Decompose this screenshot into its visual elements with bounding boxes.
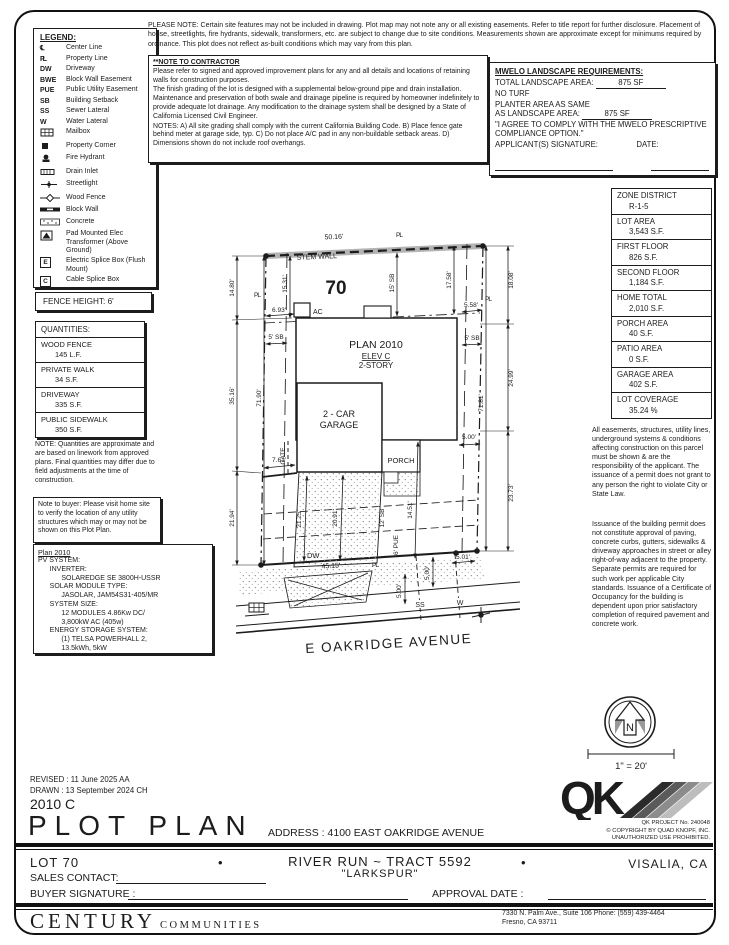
house-footprint: [294, 303, 457, 496]
bullet: •: [218, 855, 223, 870]
easement-note: All easements, structures, utility lines…: [592, 426, 713, 499]
zone-value: 1,184 S.F.: [617, 278, 708, 287]
quantity-value: 335 S.F.: [41, 400, 141, 409]
revised-line: REVISED : 11 June 2025 AA: [30, 775, 130, 784]
mwelo-total-value: 875 SF: [596, 78, 666, 90]
property-corner-icon: [40, 142, 66, 153]
zone-value: 2,010 S.F.: [617, 304, 708, 313]
builder-name: CENTURY: [30, 909, 156, 933]
zone-value: 826 S.F.: [617, 253, 708, 262]
ac-label: AC: [313, 309, 323, 316]
model-name: "LARKSPUR": [240, 868, 520, 880]
porch-step: [384, 472, 398, 483]
ac-pad: [294, 303, 310, 317]
approval-date-line: [548, 888, 706, 900]
mailbox-icon: [40, 128, 66, 140]
zone-value: 0 S.F.: [617, 355, 708, 364]
zone-row: LOT COVERAGE 35.24 %: [612, 393, 711, 418]
quantity-value: 34 S.F.: [41, 375, 141, 384]
pv-line: 3,800kW AC (405w): [38, 619, 208, 628]
applicant-signature-line: [495, 170, 613, 171]
zone-info-table: ZONE DISTRICT R-1-5 LOT AREA 3,543 S.F. …: [611, 188, 712, 419]
centerline-icon: ℄: [40, 44, 66, 53]
street-name: E OAKRIDGE AVENUE: [305, 631, 473, 656]
legend-row: PL Property Line: [40, 55, 152, 64]
quantity-row: PRIVATE WALK 34 S.F.: [36, 362, 144, 387]
stem-wall-label: STEM WALL: [297, 253, 338, 262]
divider: [16, 849, 713, 850]
qk-project-no: QK PROJECT No. 240048: [560, 820, 710, 827]
legend-row: ℄ Center Line: [40, 44, 152, 53]
buyer-signature-label: BUYER SIGNATURE :: [30, 888, 135, 900]
legend-box: LEGEND: ℄ Center Line PL Property Line D…: [33, 28, 157, 288]
buyer-note-box: Note to buyer: Please visit home site to…: [33, 497, 161, 543]
pv-line: ENERGY STORAGE SYSTEM:: [38, 627, 208, 636]
pv-line: SOLAR MODULE TYPE:: [38, 583, 208, 592]
dim-label: 71.81': [478, 394, 485, 412]
quantity-label: PUBLIC SIDEWALK: [41, 415, 141, 424]
legend-row: Drain Inlet: [40, 168, 152, 179]
legend-row: Pad Mounted Elec Transformer (Above Grou…: [40, 230, 152, 256]
zone-value: 402 S.F.: [617, 380, 708, 389]
site-plan: 70 STEM WALL 50.16' PL PL PL PL 14.80' 3…: [224, 226, 524, 686]
dim-label: 21.94': [229, 509, 236, 527]
quantity-row: DRIVEWAY 335 S.F.: [36, 387, 144, 412]
legend-row: SB Building Setback: [40, 97, 152, 106]
legend-row: SS Sewer Lateral: [40, 107, 152, 116]
dim-label: 5.00': [424, 566, 431, 580]
propertyline-icon: PL: [40, 55, 66, 64]
zone-value: 40 S.F.: [617, 329, 708, 338]
mwelo-planter-value: 875 SF: [582, 109, 652, 120]
legend-sym: W: [40, 118, 66, 127]
zone-row: SECOND FLOOR 1,184 S.F.: [612, 266, 711, 292]
site-address: ADDRESS : 4100 EAST OAKRIDGE AVENUE: [268, 827, 484, 839]
builder-logo: CENTURY COMMUNITIES: [30, 909, 262, 934]
lot-number: 70: [325, 278, 346, 299]
dim-label: 24.99': [508, 369, 515, 387]
dim-label: 14.80': [229, 279, 236, 297]
quantity-value: 145 L.F.: [41, 350, 141, 359]
compass-rose: N: [602, 694, 658, 750]
city-label: VISALIA, CA: [598, 857, 708, 871]
dim-label: 17.58': [446, 271, 453, 289]
pv-line: 12 MODULES 4.86Kw DC/: [38, 610, 208, 619]
pv-line: PV SYSTEM:: [38, 557, 208, 566]
dim-label: 15' SB: [389, 274, 396, 293]
contractor-paragraph: The finish grading of the lot is designe…: [153, 86, 483, 121]
dw-label: DW: [307, 551, 320, 560]
scale-bar: [585, 748, 677, 760]
mwelo-planter-row: AS LANDSCAPE AREA: 875 SF: [495, 109, 710, 120]
pl-mark: PL: [254, 292, 261, 299]
water-lateral-label: W: [457, 600, 464, 607]
mwelo-no-turf: NO TURF: [495, 89, 710, 100]
sales-contact-label: SALES CONTACT:: [30, 872, 119, 884]
zone-row: HOME TOTAL 2,010 S.F.: [612, 291, 711, 317]
zone-label: HOME TOTAL: [617, 293, 708, 302]
pv-system-box: Plan 2010 PV SYSTEM: INVERTER: SOLAREDGE…: [33, 544, 213, 654]
qk-logo: QK: [558, 772, 718, 820]
streetlight-icon: [40, 180, 66, 192]
north-label: N: [626, 722, 634, 734]
mailbox-icon: [245, 603, 269, 616]
streetlight-icon: [472, 607, 490, 623]
pl-mark: PL: [396, 232, 403, 239]
quantities-box: QUANTITIES: WOOD FENCE 145 L.F. PRIVATE …: [35, 321, 145, 438]
zone-row: FIRST FLOOR 826 S.F.: [612, 240, 711, 266]
zone-row: PORCH AREA 40 S.F.: [612, 317, 711, 343]
mwelo-planter-line1: PLANTER AREA AS SAME: [495, 100, 710, 110]
dim-label: 5.01': [456, 554, 470, 561]
fire-hydrant-icon: [40, 154, 66, 166]
legend-sym: DW: [40, 65, 66, 74]
dim-label: 5' SB: [464, 335, 479, 342]
mwelo-agreement: "I AGREE TO COMPLY WITH THE MWELO PRESCR…: [495, 120, 710, 139]
dim-label: 15.31': [282, 275, 289, 293]
zone-label: LOT AREA: [617, 217, 708, 226]
divider: [16, 903, 713, 907]
block-wall-icon: [40, 206, 66, 216]
lot-label: LOT 70: [30, 855, 79, 870]
cable-splice-box-icon: C: [40, 276, 66, 287]
dim-label: 5.00': [462, 434, 476, 441]
concrete-icon: [40, 218, 66, 229]
dim-label: 5.00': [396, 584, 403, 598]
zone-row: LOT AREA 3,543 S.F.: [612, 215, 711, 241]
pv-line: (1) TELSA POWERHALL 2,: [38, 636, 208, 645]
fence-height-box: FENCE HEIGHT: 6': [35, 292, 152, 311]
pv-line: 13.5kWh, 5kW: [38, 645, 208, 654]
dim-label: 20.91': [332, 509, 339, 527]
dim-label: 5.58': [464, 302, 478, 309]
zone-label: ZONE DISTRICT: [617, 191, 708, 200]
please-note: PLEASE NOTE: Certain site features may n…: [148, 21, 712, 49]
zone-label: PATIO AREA: [617, 344, 708, 353]
quantities-note: NOTE: Quantities are approximate and are…: [35, 440, 157, 485]
qk-letters: QK: [560, 772, 625, 820]
quantity-row: WOOD FENCE 145 L.F.: [36, 337, 144, 362]
dim-label: 21.25': [296, 510, 303, 528]
driveway-apron: [284, 571, 372, 608]
mwelo-title: MWELO LANDSCAPE REQUIREMENTS:: [495, 67, 710, 78]
sheet-title: PLOT PLAN: [28, 810, 254, 842]
legend-sym: PUE: [40, 86, 66, 95]
scale-label: 1" = 20': [585, 761, 677, 772]
zone-value: 35.24 %: [617, 406, 708, 415]
contractor-note-body: Please refer to signed and approved impr…: [153, 68, 483, 149]
office-city: Fresno, CA 93711: [502, 919, 557, 928]
builder-name-2: COMMUNITIES: [160, 920, 262, 931]
legend-row: Streetlight: [40, 180, 152, 192]
legend-row: PUE Public Utility Easement: [40, 86, 152, 95]
quantities-rows: WOOD FENCE 145 L.F. PRIVATE WALK 34 S.F.…: [36, 337, 144, 437]
dim-label: 12' SB: [379, 509, 386, 528]
dim-label: 6' PUE: [393, 534, 400, 555]
garage-label: GARAGE: [320, 420, 359, 430]
legend-row: BWE Block Wall Easement: [40, 76, 152, 85]
legend-row: Block Wall: [40, 206, 152, 216]
dim-label: 6.93': [272, 307, 286, 314]
transformer-icon: [40, 230, 66, 244]
tract-label: RIVER RUN ~ TRACT 5592: [240, 854, 520, 869]
sales-contact-line: [116, 872, 266, 884]
quantity-label: DRIVEWAY: [41, 390, 141, 399]
quantities-title: QUANTITIES:: [36, 322, 144, 337]
sewer-lateral-label: SS: [415, 602, 425, 609]
quantity-value: 350 S.F.: [41, 425, 141, 434]
bullet: •: [521, 855, 526, 870]
plan-label: PLAN 2010: [349, 339, 403, 351]
zone-row: GARAGE AREA 402 S.F.: [612, 368, 711, 394]
zone-label: LOT COVERAGE: [617, 395, 708, 404]
quantity-row: PUBLIC SIDEWALK 350 S.F.: [36, 412, 144, 437]
zone-row: PATIO AREA 0 S.F.: [612, 342, 711, 368]
zone-label: GARAGE AREA: [617, 370, 708, 379]
pv-line: JASOLAR, JAM54S31-405/MR: [38, 592, 208, 601]
rear-step: [364, 306, 391, 318]
contractor-note-title: **NOTE TO CONTRACTOR: [153, 59, 483, 68]
plot-plan-sheet: LEGEND: ℄ Center Line PL Property Line D…: [0, 0, 729, 945]
legend-row: DW Driveway: [40, 65, 152, 74]
mwelo-signature-row: APPLICANT(S) SIGNATURE: DATE:: [495, 140, 710, 151]
qk-use: UNAUTHORIZED USE PROHIBITED.: [560, 835, 710, 842]
pv-line: SOLAREDGE SE 3800H-USSR: [38, 575, 208, 584]
date-line: [651, 170, 709, 171]
legend-row: Wood Fence: [40, 194, 152, 205]
dim-label: 5' SB: [268, 334, 283, 341]
mwelo-total-row: TOTAL LANDSCAPE AREA: 875 SF: [495, 78, 710, 90]
story-label: 2-STORY: [359, 361, 394, 370]
legend-row: Property Corner: [40, 142, 152, 153]
legend-sym: SS: [40, 107, 66, 116]
legend-row: Concrete: [40, 218, 152, 229]
quantity-label: PRIVATE WALK: [41, 365, 141, 374]
drawn-line: DRAWN : 13 September 2024 CH: [30, 786, 148, 795]
approval-date-label: APPROVAL DATE :: [432, 888, 523, 900]
legend-sym: BWE: [40, 76, 66, 85]
zone-value: R-1-5: [617, 202, 708, 211]
dim-label: 18.08': [508, 271, 515, 289]
contractor-note-box: **NOTE TO CONTRACTOR Please refer to sig…: [148, 55, 488, 163]
contractor-paragraph: NOTES: A) All site grading shall comply …: [153, 123, 483, 149]
qk-copyright: © COPYRIGHT BY QUAD KNOPF, INC.: [560, 828, 710, 835]
pv-line: INVERTER:: [38, 566, 208, 575]
dim-label: 23.73': [508, 484, 515, 502]
garage-label: 2 - CAR: [323, 409, 356, 419]
pl-mark: PL: [485, 296, 492, 303]
legend-row: Fire Hydrant: [40, 154, 152, 166]
dim-label: 14.51': [407, 501, 414, 519]
pv-title: Plan 2010: [38, 548, 208, 557]
parkway-concrete: [236, 557, 520, 633]
zone-label: SECOND FLOOR: [617, 268, 708, 277]
quantity-label: WOOD FENCE: [41, 340, 141, 349]
dim-label: 45.15': [321, 563, 340, 571]
contractor-paragraph: Please refer to signed and approved impr…: [153, 68, 483, 86]
legend-row: E Electric Splice Box (Flush Mount): [40, 257, 152, 274]
legend-sym: SB: [40, 97, 66, 106]
pv-lines: PV SYSTEM: INVERTER: SOLAREDGE SE 3800H-…: [38, 557, 208, 654]
zone-label: PORCH AREA: [617, 319, 708, 328]
pv-line: SYSTEM SIZE:: [38, 601, 208, 610]
mwelo-box: MWELO LANDSCAPE REQUIREMENTS: TOTAL LAND…: [489, 62, 716, 176]
permit-note: Issuance of the building permit does not…: [592, 520, 713, 629]
porch-label: PORCH: [387, 456, 414, 465]
wood-fence-icon: [40, 194, 66, 205]
divider: [16, 843, 713, 847]
dim-label: 71.90': [256, 389, 263, 407]
electric-splice-box-icon: E: [40, 257, 66, 268]
zone-row: ZONE DISTRICT R-1-5: [612, 189, 711, 215]
zone-label: FIRST FLOOR: [617, 242, 708, 251]
legend-row: W Water Lateral: [40, 118, 152, 127]
legend-title: LEGEND:: [40, 33, 152, 42]
buyer-signature-line: [128, 888, 408, 900]
dim-label: 50.16': [324, 234, 343, 242]
dim-label: 35.16': [229, 387, 236, 405]
zone-value: 3,543 S.F.: [617, 227, 708, 236]
legend-row: C Cable Splice Box: [40, 276, 152, 287]
office-address: 7330 N. Palm Ave., Suite 106 Phone: (559…: [502, 910, 665, 919]
legend-row: Mailbox: [40, 128, 152, 140]
drain-inlet-icon: [40, 168, 66, 179]
gate-label: GATE: [280, 447, 287, 465]
elev-label: ELEV C: [362, 352, 391, 361]
